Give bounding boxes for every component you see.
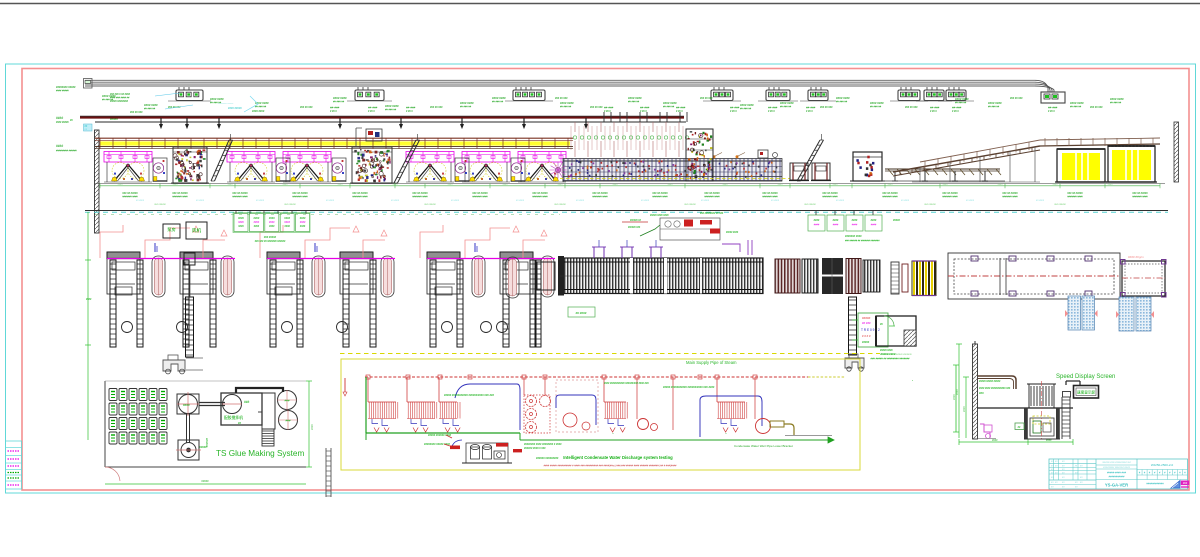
svg-text:Main Supply Pipe of Steam: Main Supply Pipe of Steam <box>686 360 737 365</box>
svg-text:######## #####: ######## ##### <box>56 85 76 89</box>
svg-text:############: ############ <box>1146 482 1164 486</box>
svg-text:## ####: ## #### <box>576 200 585 202</box>
svg-text:### ## #####: ### ## ##### <box>704 192 720 195</box>
svg-text:# ## #: # ## # <box>406 110 413 113</box>
svg-text:####: #### <box>285 225 291 228</box>
svg-text:####: #### <box>1108 184 1114 186</box>
svg-text:# ## #: # ## # <box>952 110 959 113</box>
svg-text:####: #### <box>992 439 998 442</box>
svg-text:###### ##: ###### ## <box>630 220 642 222</box>
svg-text:####: #### <box>56 116 63 120</box>
svg-text:####: #### <box>393 184 399 186</box>
svg-text:####### ####: ####### #### <box>122 195 138 198</box>
svg-text:# # # #: # # # # <box>862 334 871 338</box>
svg-text:####### ####: ####### #### <box>1067 195 1083 198</box>
svg-text:# ## #: # ## # <box>930 110 937 113</box>
svg-text:###### #### ########### ###: ###### #### ########### ### <box>1102 462 1131 464</box>
svg-text:####: #### <box>269 216 275 220</box>
svg-text:##### ########: ##### ######## <box>110 100 129 103</box>
svg-text:##-###: ##-### <box>330 106 340 110</box>
svg-text:#### ####: #### #### <box>385 104 399 108</box>
svg-text:####: #### <box>814 224 820 227</box>
svg-text:### ######: ### ###### <box>154 204 166 206</box>
svg-text:## ### ##: ## ### ## <box>333 100 345 103</box>
svg-text:## ### ##: ## ### ## <box>1070 105 1082 108</box>
svg-text:#### #### ########### ###: #### #### ########### ### <box>979 387 1011 390</box>
svg-text:#####: ##### <box>862 340 870 344</box>
svg-text:##### ########### ######/####: ##### ########### ######/#### ###·#### <box>663 385 715 389</box>
svg-text:#### ####: #### #### <box>560 101 574 105</box>
svg-text:######### ######: ######### ###### <box>56 150 77 153</box>
svg-text:####: #### <box>955 389 959 395</box>
svg-text:####### ####: ####### #### <box>352 195 368 198</box>
svg-text:# ## #: # ## # <box>368 110 375 113</box>
svg-text:####: #### <box>86 298 92 301</box>
svg-text:## ### ##: ## ### ## <box>1110 101 1122 104</box>
svg-text:####: #### <box>254 221 260 224</box>
svg-text:####: #### <box>448 184 454 186</box>
svg-text:####: #### <box>269 221 275 224</box>
svg-text:### ## #####: ### ## ##### <box>762 192 778 195</box>
svg-text:### ## #####: ### ## ##### <box>232 192 248 195</box>
svg-text:#### #####: #### ##### <box>228 106 242 110</box>
svg-text:# ## #: # ## # <box>806 110 813 113</box>
svg-text:#### ####: #### #### <box>144 103 158 107</box>
svg-text:# ## #: # ## # <box>640 110 647 113</box>
svg-text:###### #### # ###: ###### #### # ### <box>524 447 546 450</box>
svg-text:## ### ##: ## ### ## <box>955 101 967 104</box>
svg-text:### ## #####: ### ## ##### <box>122 192 138 195</box>
svg-text:#### ####: #### #### <box>836 96 850 100</box>
svg-text:### ######: ### ###### <box>554 204 566 206</box>
svg-text:### ### ## ####### ######: ### ### ## ####### ###### <box>255 240 286 243</box>
svg-text:## ####: ## #### <box>701 200 710 202</box>
svg-text:####### ####: ####### #### <box>1002 195 1018 198</box>
svg-text:####### ####: ####### #### <box>532 195 548 198</box>
svg-text:### ## ###: ### ## ### <box>1090 106 1103 109</box>
svg-text:######## ##### ####: ######## ##### #### <box>424 442 451 446</box>
svg-text:### ## #####: ### ## ##### <box>882 192 898 195</box>
svg-text:####: #### <box>833 218 839 222</box>
svg-text:#### ####: #### #### <box>988 101 1002 105</box>
svg-text:####: #### <box>238 216 244 220</box>
svg-text:####### ####: ####### #### <box>942 195 958 198</box>
svg-text:###### #########: ###### ######### <box>536 456 559 460</box>
svg-text:# ## #: # ## # <box>604 110 611 113</box>
svg-text:####### ####: ####### #### <box>292 195 308 198</box>
svg-text:## ####: ## #### <box>391 200 400 202</box>
svg-text:## ### ##: ## ### ## <box>460 105 472 108</box>
svg-text:TS Glue Making System: TS Glue Making System <box>216 449 304 458</box>
svg-text:### ## ###: ### ## ### <box>1010 97 1023 100</box>
svg-text:## ### ##: ## ### ## <box>870 105 882 108</box>
svg-text:### #####: ### ##### <box>264 235 277 239</box>
svg-text:## ####: ## #### <box>1036 200 1045 202</box>
svg-text:####### ####: ####### #### <box>172 195 188 198</box>
svg-text:####: #### <box>284 221 290 224</box>
svg-text:###: ### <box>284 399 289 403</box>
svg-text:##-###: ##-### <box>806 106 816 110</box>
svg-text:####: #### <box>871 224 877 227</box>
svg-text:### ## #####: ### ## ##### <box>592 192 608 195</box>
svg-text:####: #### <box>173 184 179 186</box>
svg-text:### ##### ## ######## #######: ### ##### ## ######## ####### <box>871 357 911 361</box>
svg-text:### ## ###: ### ## ### <box>555 97 568 100</box>
svg-text:### ## #####: ### ## ##### <box>652 192 668 195</box>
svg-text:#### ####: #### #### <box>333 96 347 100</box>
svg-text:______ ____: ______ ____ <box>217 101 234 104</box>
svg-text:####: #### <box>300 216 306 220</box>
svg-text:#### ####: #### #### <box>628 96 642 100</box>
svg-text:####: #### <box>943 184 949 186</box>
svg-text:风机: 风机 <box>192 227 202 234</box>
svg-text:# ## #: # ## # <box>1048 110 1055 113</box>
svg-text:########## ######## #####: ########## ######## ##### <box>1103 467 1131 469</box>
svg-text:###### ###: ###### ### <box>628 227 641 229</box>
svg-text:####### ####: ####### #### <box>845 234 862 238</box>
svg-text:#### ####: #### #### <box>1070 101 1084 105</box>
svg-text:#### ####: #### #### <box>740 103 754 107</box>
svg-text:#### ####: #### #### <box>492 96 506 100</box>
svg-text:### ## #####: ### ## ##### <box>822 192 838 195</box>
svg-text:# ## #: # ## # <box>730 110 737 113</box>
svg-text:######## #### ######## # ####: ######## #### ######## # #### <box>524 443 562 446</box>
svg-text:## ### ##: ## ### ## <box>560 105 572 108</box>
svg-text:### ###### ## ####### #######: ### ###### ## ####### ####### <box>845 241 880 243</box>
svg-text:##-###: ##-### <box>952 106 962 110</box>
svg-text:#### ##### ########## # #### #: #### ##### ########## # #### ###-#######… <box>544 465 677 468</box>
svg-text:Condensate Water Weir Pipe Low: Condensate Water Weir Pipe Lower Bracket <box>734 444 793 448</box>
svg-text:####### ####: ####### #### <box>472 195 488 198</box>
svg-text:####: #### <box>998 184 1004 186</box>
svg-text:## ####: ## #### <box>516 200 525 202</box>
svg-text:###: ### <box>285 419 290 423</box>
svg-text:泵房: 泵房 <box>167 226 175 233</box>
svg-text:####### ####: ####### #### <box>412 195 428 198</box>
svg-text:### ## #####: ### ## ##### <box>1067 192 1083 195</box>
svg-text:#### ####: #### #### <box>663 101 677 105</box>
svg-text:### ## ###: ### ## ### <box>130 111 143 114</box>
svg-text:##-###: ##-### <box>640 106 650 110</box>
svg-text:##### ####: ##### #### <box>881 352 896 356</box>
svg-text:### ## #####: ### ## ##### <box>172 192 188 195</box>
svg-text:##### ########### ######/####: ##### ########### ######/#### ###·### <box>444 393 494 397</box>
svg-text:### ## #####: ### ## ##### <box>1132 192 1148 195</box>
svg-text:####: #### <box>300 221 306 224</box>
svg-text:####: #### <box>852 224 858 227</box>
svg-text:####: #### <box>613 184 619 186</box>
svg-text:## ### ##: ## ### ## <box>628 100 640 103</box>
svg-text:## ### ##: ## ### ## <box>385 108 397 111</box>
svg-text:### ## ###: ### ## ### <box>590 106 603 109</box>
svg-text:##-###: ##-### <box>768 106 778 110</box>
svg-text:#### ####: #### #### <box>955 97 969 101</box>
svg-text:#####: ##### <box>893 219 901 222</box>
svg-text:## ####: ## #### <box>136 200 145 202</box>
svg-text:####: #### <box>962 406 966 412</box>
svg-text:T R E 0 9 1 2: T R E 0 9 1 2 <box>861 328 880 332</box>
svg-text:###########: ########### <box>1109 475 1125 479</box>
svg-text:#### ####: #### #### <box>1110 97 1124 101</box>
svg-text:#### ##g/m: #### ##g/m <box>1128 255 1144 259</box>
svg-text:##### ##### #####: ##### ##### ##### <box>979 380 1001 383</box>
svg-text:####: #### <box>1053 184 1059 186</box>
svg-text:##-###: ##-### <box>730 106 740 110</box>
svg-text:### ## #####: ### ## ##### <box>472 192 488 195</box>
svg-text:####: #### <box>503 184 509 186</box>
svg-text:####: #### <box>228 184 234 186</box>
svg-text:####: #### <box>269 225 275 228</box>
svg-text:### ## ###: ### ## ### <box>300 106 313 109</box>
svg-text:###: ### <box>244 400 250 404</box>
svg-text:## ### ##: ## ### ## <box>780 105 792 108</box>
svg-text:####### ####: ####### #### <box>762 195 778 198</box>
svg-text:## ####: ## #### <box>771 200 780 202</box>
svg-text:####### ####: ####### #### <box>822 195 838 198</box>
svg-text:####### ####: ####### #### <box>704 195 720 198</box>
svg-text:## ### ##: ## ### ## <box>740 107 752 110</box>
svg-text:####: #### <box>668 184 674 186</box>
svg-text:## ####: ## #### <box>576 311 587 315</box>
svg-text:### ######: ### ###### <box>804 204 816 206</box>
svg-text:#### #####: #### ##### <box>56 121 69 124</box>
svg-text:##### #### ####: ##### #### #### <box>650 214 669 217</box>
svg-text:#### ####: #### #### <box>460 101 474 105</box>
svg-text:####: #### <box>118 184 124 186</box>
svg-text:####: #### <box>283 184 289 186</box>
svg-text:####: #### <box>814 218 820 222</box>
svg-text:### ## #####: ### ## ##### <box>532 192 548 195</box>
svg-text:###: ### <box>1183 481 1188 485</box>
svg-text:####: #### <box>888 184 894 186</box>
svg-text:### ######: ### ###### <box>924 204 936 206</box>
svg-text:######: ###### <box>205 438 209 448</box>
svg-text:## ####: ## #### <box>256 200 265 202</box>
svg-text:####: #### <box>338 184 344 186</box>
svg-text:#####: ##### <box>862 316 871 320</box>
svg-text:## ####: ## #### <box>196 200 205 202</box>
svg-text:####### ####: ####### #### <box>592 195 608 198</box>
svg-text:配胶搅拌机: 配胶搅拌机 <box>224 415 243 420</box>
svg-text:####: #### <box>300 225 306 228</box>
svg-text:速度显示屏: 速度显示屏 <box>1077 390 1095 395</box>
svg-text:####### ####: ####### #### <box>1132 195 1148 198</box>
svg-text:### ## #####: ### ## ##### <box>1002 192 1018 195</box>
svg-text:### ## ###: ### ## ### <box>820 106 833 109</box>
svg-text:#### ####: #### #### <box>252 109 265 113</box>
svg-text:### ## #####: ### ## ##### <box>292 192 308 195</box>
svg-text:#### ####: #### #### <box>870 101 884 105</box>
svg-text:## ### ##: ## ### ## <box>492 100 504 103</box>
svg-text:####: #### <box>310 424 314 430</box>
svg-text:##-###: ##-### <box>676 106 686 110</box>
svg-text:#### #####: #### ##### <box>56 90 69 93</box>
svg-text:##-###: ##-### <box>604 106 614 110</box>
svg-text:#### ####: #### #### <box>780 101 794 105</box>
svg-text:## ### ##: ## ### ## <box>663 105 675 108</box>
svg-text:####: #### <box>723 184 729 186</box>
svg-text:## ####: ## #### <box>836 200 845 202</box>
svg-text:WJ250-2500-2-0: WJ250-2500-2-0 <box>1151 463 1174 467</box>
svg-text:##-###: ##-### <box>406 106 416 110</box>
svg-text:### ## ###: ### ## ### <box>905 106 918 109</box>
svg-text:## ### ##: ## ### ## <box>836 100 848 103</box>
svg-text:##-###: ##-### <box>1048 106 1058 110</box>
svg-text:# ## #: # ## # <box>330 110 337 113</box>
svg-text:### ## #####: ### ## ##### <box>412 192 428 195</box>
svg-text:### ######: ### ###### <box>1054 204 1066 206</box>
svg-text:####: #### <box>254 225 260 228</box>
svg-text:####### ####: ####### #### <box>652 195 668 198</box>
svg-text:####: #### <box>871 218 877 222</box>
svg-text:### ## #####: ### ## ##### <box>352 192 368 195</box>
svg-text:### ######## ## ###: ### ######## ## ### <box>700 212 724 215</box>
svg-text:# ## #: # ## # <box>768 110 775 113</box>
svg-text:Speed Display Screen: Speed Display Screen <box>1056 374 1115 380</box>
svg-text:##### ####: ##### #### <box>726 232 739 234</box>
svg-text:### ## ###: ### ## ### <box>700 97 713 100</box>
svg-text:## ### ##: ## ### ## <box>144 107 156 110</box>
svg-text:#### ########### ######/### ##: #### ########### ######/### ####·### <box>604 382 649 385</box>
svg-text:## ### ##: ## ### ## <box>255 105 267 108</box>
svg-text:####: #### <box>254 216 260 220</box>
svg-text:YS-GA-VER: YS-GA-VER <box>1105 482 1128 487</box>
svg-text:## ####: ## #### <box>641 200 650 202</box>
svg-text:## ###: ## ### <box>862 321 871 325</box>
svg-text:### ######: ### ###### <box>424 204 436 206</box>
svg-text:## ####: ## #### <box>901 200 910 202</box>
svg-text:#####: ##### <box>201 479 209 483</box>
svg-text:#####-####-###: #####-####-### <box>1107 471 1127 475</box>
svg-text:x: x <box>912 380 913 382</box>
svg-text:####: #### <box>238 221 244 224</box>
svg-text:####: #### <box>284 216 290 220</box>
svg-text:##-###: ##-### <box>930 106 940 110</box>
svg-text:## ####: ## #### <box>966 200 975 202</box>
svg-text:### ######: ### ###### <box>684 204 696 206</box>
svg-text:####: #### <box>238 225 244 228</box>
svg-text:####: #### <box>56 144 63 148</box>
svg-text:####: #### <box>833 224 839 227</box>
svg-text:####### ####: ####### #### <box>882 195 898 198</box>
svg-text:### ## #####: ### ## ##### <box>942 192 958 195</box>
svg-text:Intelligent Condensate Water D: Intelligent Condensate Water Discharge s… <box>563 455 673 460</box>
svg-text:### ## ###: ### ## ### <box>430 106 443 109</box>
svg-text:####: #### <box>833 184 839 186</box>
svg-text:## ####: ## #### <box>326 200 335 202</box>
svg-text:###: ### <box>979 391 984 395</box>
svg-text:### ######: ### ###### <box>284 204 296 206</box>
svg-text:## ####: ## #### <box>451 200 460 202</box>
svg-text:####: #### <box>778 184 784 186</box>
svg-text:####### ####: ####### #### <box>232 195 248 198</box>
svg-text:##-###: ##-### <box>368 106 378 110</box>
svg-text:####: #### <box>183 403 190 407</box>
svg-text:####: #### <box>852 218 858 222</box>
svg-text:####: #### <box>558 184 564 186</box>
svg-text:## ### ##: ## ### ## <box>988 105 1000 108</box>
